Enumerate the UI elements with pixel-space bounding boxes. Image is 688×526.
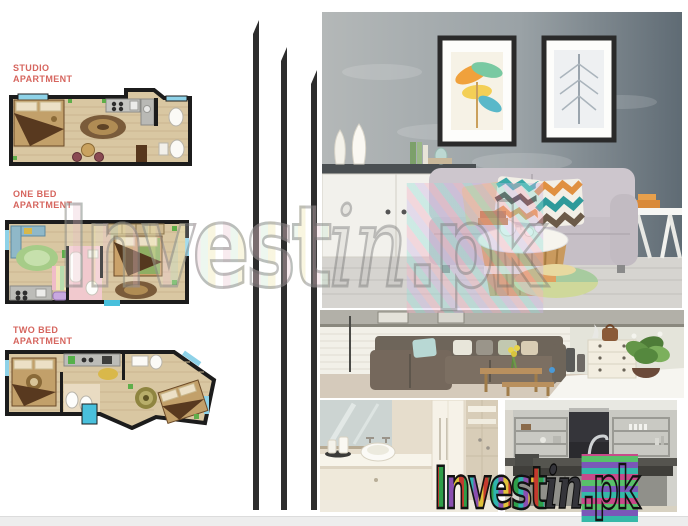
bathroom-vanity-photo xyxy=(320,400,498,512)
studio-label-line1: STUDIO xyxy=(13,63,72,74)
one-bed-window-left xyxy=(5,230,9,250)
one-bed-label-line1: ONE BED xyxy=(13,189,72,200)
vessel-sink xyxy=(361,443,395,461)
two-bed-wall-mid-right xyxy=(122,352,125,380)
framed-art-leaf xyxy=(544,38,614,140)
tall-cabinet xyxy=(432,400,464,504)
framed-art-tropical xyxy=(440,38,514,144)
studio-bath-wall xyxy=(154,98,158,126)
studio-label-line2: APARTMENT xyxy=(13,74,72,85)
one-bed-door xyxy=(104,300,120,306)
studio-bed xyxy=(14,100,64,146)
one-bed-window-right xyxy=(185,238,189,256)
two-bed-bed-left xyxy=(12,358,56,406)
kitchen-floor xyxy=(505,506,677,512)
two-bed-apartment-label: TWO BED APARTMENT xyxy=(13,325,72,346)
bathroom-floor xyxy=(320,500,498,512)
bottom-gray-bar xyxy=(0,516,688,526)
island xyxy=(513,466,673,506)
one-bed-striped-rug xyxy=(52,266,68,290)
one-bed-rug-green xyxy=(16,245,58,271)
tiled-wall-right xyxy=(466,400,498,512)
two-bed-label-line1: TWO BED xyxy=(13,325,72,336)
two-bed-window-left xyxy=(5,360,9,376)
one-bed-bathroom xyxy=(66,246,103,300)
top-shelf-strip xyxy=(320,310,684,327)
one-bed-rug-oval xyxy=(115,281,157,299)
two-bed-floorplan xyxy=(4,344,217,430)
studio-window-right xyxy=(166,96,187,101)
kitchen-island-photo xyxy=(505,400,677,512)
living-room-gray-wall-sofa-photo xyxy=(322,12,682,308)
property-flyer-canvas: STUDIO APARTMENT xyxy=(0,0,688,526)
two-bed-wall-mid-left xyxy=(60,372,63,414)
two-bed-rug-yellow xyxy=(98,368,118,380)
living-room-sectional-sofa-photo xyxy=(320,310,684,398)
one-bed-wardrobe xyxy=(108,224,164,234)
one-bed-floorplan xyxy=(4,216,190,308)
one-bed-bed xyxy=(114,236,162,276)
studio-window-top xyxy=(18,94,48,100)
two-bed-round-rug xyxy=(135,387,157,409)
one-bed-label-line2: APARTMENT xyxy=(13,200,72,211)
studio-rug xyxy=(80,115,126,139)
two-bed-kitchen xyxy=(64,354,120,366)
divider-line-2 xyxy=(281,47,287,510)
studio-door xyxy=(136,145,147,162)
two-bed-bathroom xyxy=(64,384,100,424)
one-bed-apartment-label: ONE BED APARTMENT xyxy=(13,189,72,210)
divider-line-3 xyxy=(311,70,317,510)
studio-apartment-label: STUDIO APARTMENT xyxy=(13,63,72,84)
studio-floorplan xyxy=(8,87,193,167)
divider-line-1 xyxy=(253,20,259,510)
